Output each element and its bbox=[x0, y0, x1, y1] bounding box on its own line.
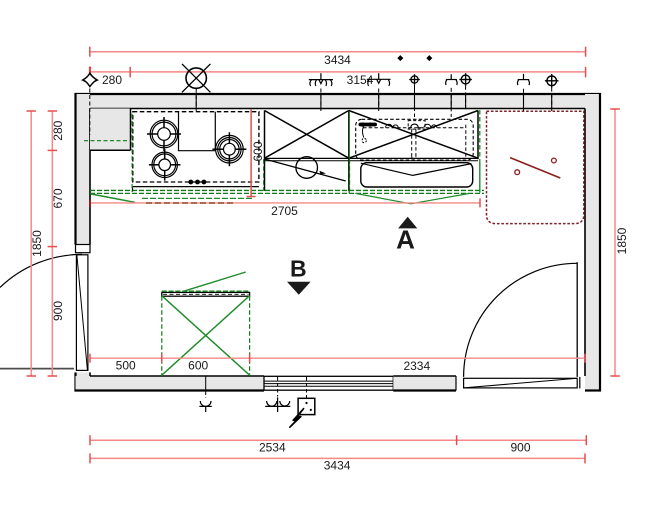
svg-text:2534: 2534 bbox=[259, 441, 286, 455]
svg-text:280: 280 bbox=[51, 120, 65, 140]
svg-text:900: 900 bbox=[510, 441, 530, 455]
svg-text:B: B bbox=[290, 256, 307, 282]
svg-text:3154: 3154 bbox=[347, 73, 374, 87]
svg-text:A: A bbox=[396, 225, 415, 255]
svg-text:2705: 2705 bbox=[271, 204, 298, 218]
svg-text:900: 900 bbox=[51, 301, 65, 321]
svg-text:500: 500 bbox=[116, 359, 136, 373]
svg-text:1850: 1850 bbox=[615, 227, 629, 254]
svg-text:600: 600 bbox=[251, 141, 265, 161]
svg-text:670: 670 bbox=[51, 188, 65, 208]
svg-text:2334: 2334 bbox=[403, 359, 430, 373]
svg-text:600: 600 bbox=[188, 359, 208, 373]
svg-text:280: 280 bbox=[102, 73, 122, 87]
svg-text:1850: 1850 bbox=[30, 230, 44, 257]
svg-text:3434: 3434 bbox=[324, 459, 351, 473]
svg-text:3434: 3434 bbox=[324, 53, 351, 67]
